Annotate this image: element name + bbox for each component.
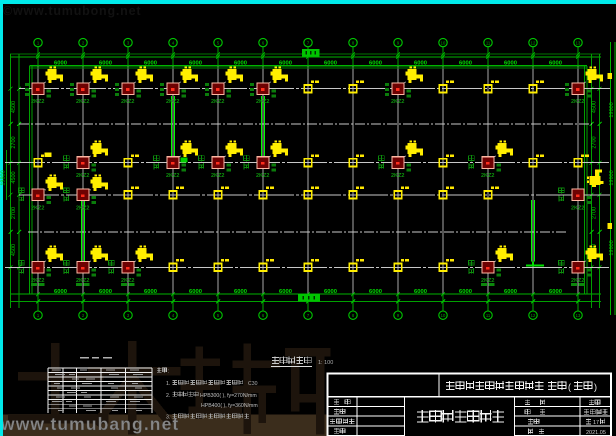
svg-text::: : <box>168 368 169 374</box>
svg-text:): ) <box>594 382 597 392</box>
svg-text:13: 13 <box>576 41 581 46</box>
svg-text:6000: 6000 <box>99 289 112 295</box>
svg-text:1: 100: 1: 100 <box>318 360 333 366</box>
svg-text:19800: 19800 <box>609 240 615 255</box>
svg-text:13: 13 <box>576 313 581 318</box>
svg-text:2KZ2: 2KZ2 <box>166 99 179 105</box>
svg-text:www.tumubang.net: www.tumubang.net <box>0 414 179 434</box>
svg-text:6000: 6000 <box>324 289 337 295</box>
svg-text:1.: 1. <box>166 381 170 387</box>
svg-text:10: 10 <box>441 41 446 46</box>
svg-text:3.: 3. <box>166 415 170 421</box>
svg-text:2KZ2: 2KZ2 <box>211 99 224 105</box>
svg-text:12: 12 <box>531 41 536 46</box>
svg-text:6000: 6000 <box>414 289 427 295</box>
svg-text:2KZ2: 2KZ2 <box>31 99 44 105</box>
svg-text:HPB300( ), fy=270N/mm: HPB300( ), fy=270N/mm <box>200 393 257 399</box>
svg-text:2700: 2700 <box>592 136 598 148</box>
svg-text:4500: 4500 <box>592 101 598 113</box>
svg-text:2KZ2: 2KZ2 <box>571 99 584 105</box>
svg-text:2KZ2: 2KZ2 <box>121 99 134 105</box>
svg-text:4500: 4500 <box>11 244 17 256</box>
svg-text:2700: 2700 <box>592 207 598 219</box>
svg-text:2KZ2: 2KZ2 <box>571 205 584 211</box>
svg-text:6000: 6000 <box>369 289 382 295</box>
svg-text:4500: 4500 <box>11 171 17 183</box>
svg-text:©www.tumubong.net: ©www.tumubong.net <box>3 4 141 18</box>
svg-text:C30: C30 <box>248 381 258 387</box>
svg-text:2KZ2: 2KZ2 <box>481 173 494 179</box>
svg-text:2KZ2: 2KZ2 <box>391 99 404 105</box>
svg-text:6000: 6000 <box>54 289 67 295</box>
svg-text:19800: 19800 <box>1 170 7 185</box>
svg-text:11: 11 <box>486 313 491 318</box>
svg-text:2KZ2: 2KZ2 <box>76 205 89 211</box>
svg-text:2700: 2700 <box>11 136 17 148</box>
svg-text:19800: 19800 <box>609 170 615 185</box>
svg-text:2KZ2: 2KZ2 <box>76 99 89 105</box>
svg-text:6000: 6000 <box>279 289 292 295</box>
svg-text:2021.05: 2021.05 <box>586 430 606 436</box>
svg-text:6000: 6000 <box>234 289 247 295</box>
svg-text:2KZ2: 2KZ2 <box>166 173 179 179</box>
svg-text:12: 12 <box>531 313 536 318</box>
svg-text:4500: 4500 <box>11 101 17 113</box>
svg-text:(: ( <box>568 382 571 392</box>
svg-text:2KZ2: 2KZ2 <box>76 173 89 179</box>
svg-text:HPB400( ), fy=360N/mm: HPB400( ), fy=360N/mm <box>201 403 258 409</box>
svg-text:11: 11 <box>486 41 491 46</box>
svg-text:2700: 2700 <box>11 207 17 219</box>
svg-text:10: 10 <box>441 313 446 318</box>
svg-text:6000: 6000 <box>504 289 517 295</box>
svg-text:2KZ2: 2KZ2 <box>391 173 404 179</box>
svg-text:6000: 6000 <box>144 289 157 295</box>
svg-text:6000: 6000 <box>459 289 472 295</box>
svg-text:2KZ2: 2KZ2 <box>256 173 269 179</box>
svg-text:2KZ2: 2KZ2 <box>211 173 224 179</box>
svg-text:2KZ2: 2KZ2 <box>31 205 44 211</box>
svg-text:6000: 6000 <box>549 289 562 295</box>
svg-text:19800: 19800 <box>609 102 615 117</box>
svg-text:17: 17 <box>593 420 599 426</box>
svg-text:2KZ2: 2KZ2 <box>256 99 269 105</box>
svg-text:2.: 2. <box>166 393 170 399</box>
svg-text:6000: 6000 <box>189 289 202 295</box>
